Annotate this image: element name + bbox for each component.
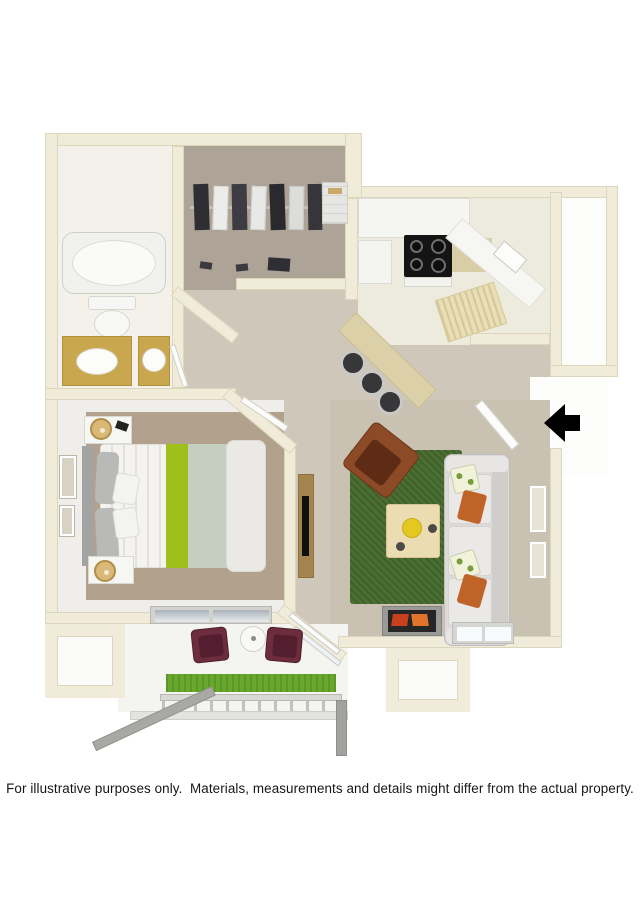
patio-chair-2-seat — [272, 634, 298, 658]
hanging-garment-light-2 — [250, 186, 267, 230]
toilet-tank — [88, 296, 136, 310]
closet-shoes-1 — [200, 261, 213, 270]
storage-room — [45, 624, 125, 698]
wall-bedroom-top — [45, 388, 236, 400]
living-window — [452, 622, 514, 644]
bed-blanket-sage — [188, 444, 228, 568]
hanging-garment-dark-4 — [308, 184, 323, 230]
bed-runner-lime — [166, 444, 188, 568]
living-window-pane — [457, 627, 511, 641]
bedroom-wall-art-2 — [60, 506, 74, 536]
wall-entry-top — [550, 365, 618, 377]
entry-arrow-head — [544, 404, 565, 442]
wall-top-left — [45, 133, 362, 146]
bedroom-wall-art-1 — [60, 456, 76, 498]
disclaimer-text: For illustrative purposes only. Material… — [0, 781, 640, 796]
bed-fur-throw — [226, 440, 266, 572]
fireplace-flame-1 — [391, 614, 409, 626]
wall-top-kitchen — [345, 186, 618, 198]
sofa-back — [492, 472, 508, 628]
wall-outer-right — [606, 186, 618, 377]
burner-2 — [431, 239, 446, 254]
coffee-table-bowl-yellow — [402, 518, 422, 538]
lamp-bottom — [94, 560, 116, 582]
patio-chair-1 — [190, 626, 229, 664]
entry-arrow-icon — [544, 404, 582, 442]
entry-arrow-tail — [565, 415, 580, 431]
lamp-top — [90, 418, 112, 440]
toilet-bowl — [94, 310, 130, 338]
hanging-garment-dark-3 — [269, 184, 286, 230]
wall-living-right — [550, 448, 562, 648]
flat-tv — [302, 496, 309, 556]
patio-chair-2 — [265, 626, 304, 663]
living-wall-art-1 — [530, 486, 546, 532]
bed-pillow-white-1 — [112, 472, 141, 506]
vanity-sink-round — [142, 348, 166, 372]
burner-3 — [410, 258, 423, 271]
hanging-garment-light-1 — [212, 186, 229, 230]
patio-beam-right — [336, 700, 347, 756]
vanity-sink-oval — [76, 348, 118, 375]
hanging-garment-dark-1 — [193, 184, 210, 230]
coffee-table-decor-2 — [396, 542, 405, 551]
patio-grass-strip — [166, 674, 336, 692]
bed-pillow-white-2 — [112, 506, 140, 539]
living-wall-art-2 — [530, 542, 546, 578]
burner-4 — [431, 258, 446, 273]
closet-shoes-2 — [236, 263, 249, 271]
hanging-garment-dark-2 — [232, 184, 248, 230]
lamp-top-finial — [100, 428, 105, 433]
fireplace-flame-2 — [411, 614, 429, 626]
accent-chair-seat — [353, 438, 402, 487]
exterior-recess — [562, 198, 606, 365]
wall-kitchen-right — [550, 192, 562, 377]
refrigerator — [358, 240, 392, 284]
patio-side-table — [240, 626, 266, 652]
patio-table-decor — [251, 636, 256, 641]
range-front — [404, 277, 452, 287]
bed-headboard — [82, 446, 94, 566]
bar-stool-1 — [340, 350, 366, 376]
floor-plan-page: For illustrative purposes only. Material… — [0, 0, 640, 905]
closet-hat-tan — [328, 188, 342, 194]
hanging-garment-light-3 — [289, 186, 305, 230]
wall-kitchen-bottom — [470, 333, 550, 345]
utility-nook — [386, 648, 470, 712]
bedroom-window-panes — [155, 610, 269, 622]
patio-chair-1-seat — [198, 634, 224, 658]
lamp-bottom-finial — [104, 570, 109, 575]
bedroom-window — [150, 606, 272, 624]
bathtub-basin — [72, 240, 156, 286]
bar-stool-3 — [377, 389, 403, 415]
wall-bedroom-right — [284, 448, 296, 612]
coffee-table-decor-1 — [428, 524, 437, 533]
burner-1 — [410, 240, 423, 253]
closet-shoe-box — [268, 257, 291, 272]
wall-closet-bottom — [236, 278, 352, 290]
